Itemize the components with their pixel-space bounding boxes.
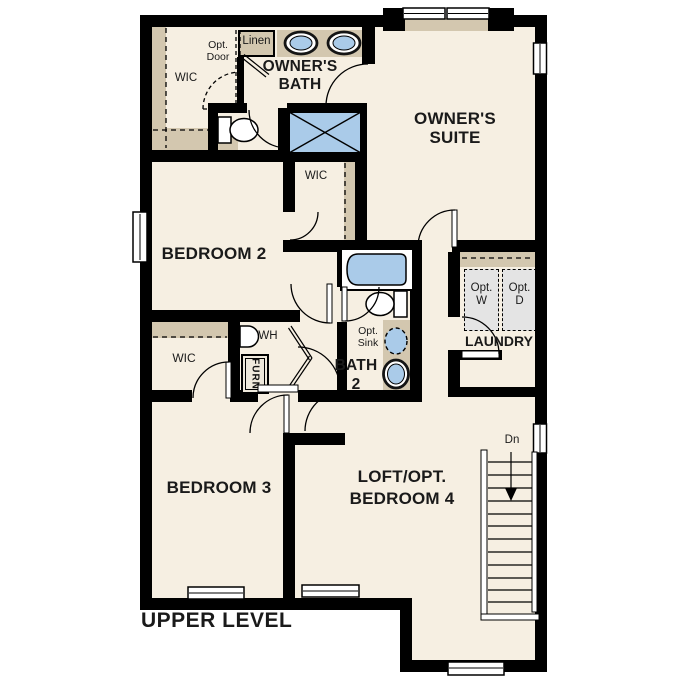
plan-vector-overlay: FURN — [0, 0, 687, 687]
door-hall-bedroom2 — [291, 284, 332, 323]
label-opt-sink: Opt. Sink — [349, 326, 387, 350]
label-loft: LOFT/OPT. BEDROOM 4 — [328, 466, 476, 510]
label-linen: Linen — [238, 35, 275, 48]
label-wic-owner: WIC — [168, 72, 204, 85]
window-bottom-right — [448, 662, 504, 675]
toilet-owners-bath — [218, 117, 258, 143]
stairs-rail-left — [481, 450, 487, 620]
optional-door-wic-owner — [203, 72, 240, 109]
window-stairs-right — [534, 424, 547, 453]
window-suite-right — [534, 43, 547, 74]
door-hall-south — [258, 347, 340, 392]
window-bay-2 — [447, 8, 489, 19]
toilet-bath2 — [366, 291, 407, 317]
stairs — [481, 450, 539, 620]
floor-plan: FURN — [0, 0, 687, 687]
label-wic-bedroom3: WIC — [158, 352, 210, 366]
stairs-treads — [488, 462, 532, 602]
label-opt-washer: Opt. W — [464, 282, 499, 308]
mech-closet-bifold-doors — [289, 326, 313, 389]
label-bath2: BATH 2 — [330, 357, 382, 394]
window-loft-bottom — [302, 585, 359, 597]
stairs-rail-right — [532, 452, 537, 612]
owners-bath-sinks — [285, 32, 360, 54]
label-opt-dryer: Opt. D — [502, 282, 537, 308]
label-wic-bedroom2: WIC — [295, 170, 337, 183]
label-bedroom3: BEDROOM 3 — [153, 478, 285, 497]
label-owners-suite: OWNER'S SUITE — [392, 109, 518, 148]
door-owners-suite — [418, 210, 457, 247]
bathtub — [341, 249, 413, 290]
optional-sink — [385, 328, 407, 354]
door-bedroom3 — [250, 395, 289, 433]
window-bedroom2-left — [133, 212, 147, 262]
down-arrow — [505, 452, 517, 501]
door-wic-bedroom3 — [193, 362, 231, 398]
label-stairs-direction: Dn — [498, 434, 526, 447]
bath2-sink — [384, 360, 409, 388]
door-loft-entry — [305, 391, 345, 431]
label-level-title: UPPER LEVEL — [141, 609, 321, 633]
door-toilet-room — [249, 110, 287, 148]
label-laundry: LAUNDRY — [459, 334, 539, 350]
stairs-rail-bottom — [481, 614, 539, 620]
window-bay-1 — [403, 8, 445, 19]
shower — [289, 112, 361, 153]
label-bedroom2: BEDROOM 2 — [150, 244, 278, 263]
window-bedroom3-bottom — [188, 587, 244, 599]
label-owners-bath: OWNER'S BATH — [238, 58, 362, 93]
label-opt-door: Opt. Door — [196, 40, 240, 64]
door-wic-bedroom2 — [290, 212, 318, 240]
label-water-heater: WH — [254, 330, 282, 343]
